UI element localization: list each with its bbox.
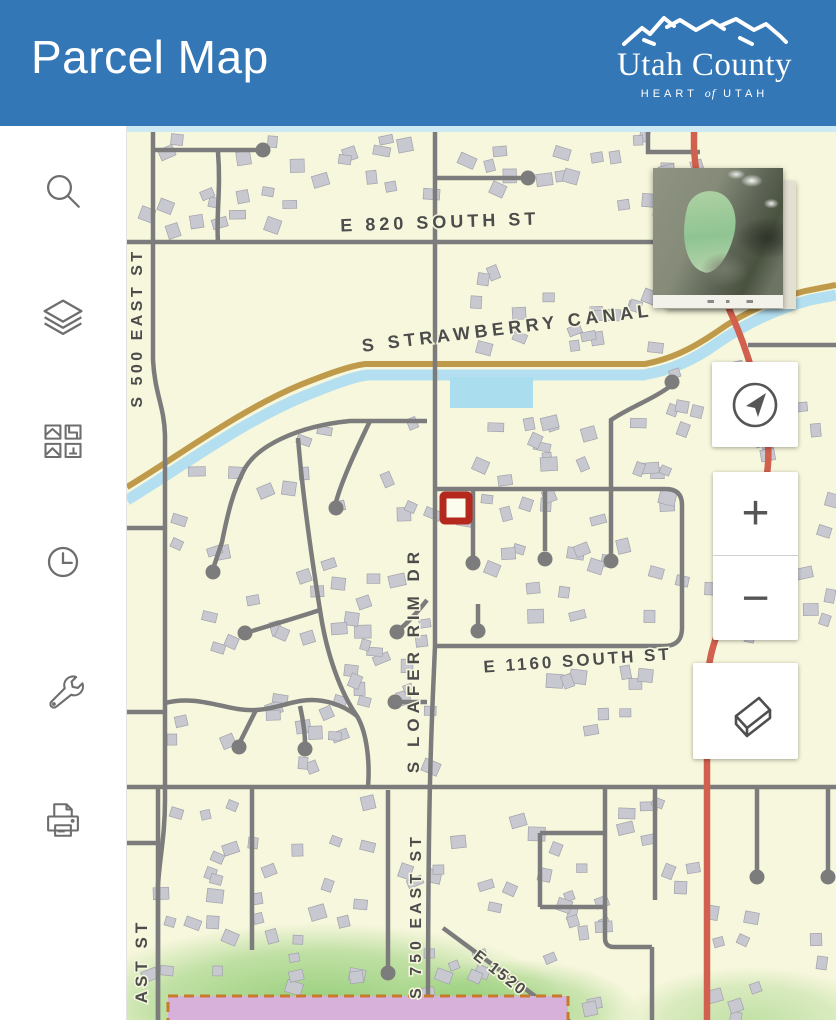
search-tool-button[interactable] (35, 163, 91, 219)
tagline-utah: UTAH (723, 88, 768, 100)
zoom-out-button[interactable]: − (713, 557, 798, 640)
selected-parcel-marker[interactable] (443, 495, 469, 521)
search-icon (35, 163, 91, 219)
edge-water-strip (127, 126, 836, 132)
terrain-overlay (653, 168, 783, 295)
logo-org-name: Utah County (597, 48, 812, 82)
tagline-heart: HEART (641, 88, 698, 100)
logo-tagline: HEART of UTAH (597, 86, 812, 101)
layers-tool-button[interactable] (35, 291, 91, 347)
zoning-parcel (168, 996, 568, 1020)
overview-inset[interactable] (653, 168, 783, 308)
street-label-s500: S 500 EAST ST (129, 248, 146, 407)
street-label-s750: S 750 EAST ST (408, 833, 425, 999)
zoom-control: + − (713, 472, 798, 640)
locate-button[interactable] (712, 362, 798, 447)
app-header: Parcel Map Utah County HEART of UTAH (0, 0, 836, 126)
locate-compass-icon (725, 375, 785, 435)
zoom-in-button[interactable]: + (713, 472, 798, 556)
parcel-map-app: { "header": { "title": "Parcel Map", "bg… (0, 0, 836, 1020)
basemap-gallery-icon (35, 415, 91, 471)
tools-tool-button[interactable] (35, 665, 91, 721)
mountain-range-icon (620, 14, 790, 48)
map-canvas[interactable]: E 820 SOUTH ST S STRAWBERRY CANAL S 500 … (127, 126, 836, 1020)
basemap-toggle-button[interactable] (693, 663, 798, 759)
printer-icon (35, 792, 91, 848)
pond (450, 377, 533, 408)
tagline-of: of (705, 86, 716, 100)
layers-icon (35, 291, 91, 347)
inset-attribution-strip (653, 295, 783, 308)
clock-icon (35, 534, 91, 590)
street-label-east-st-partial: AST ST (132, 919, 151, 1003)
print-tool-button[interactable] (35, 792, 91, 848)
street-label-loafer-rim: S LOAFER RIM DR (404, 547, 423, 773)
satellite-thumbnail (653, 168, 783, 295)
tool-sidebar (0, 126, 127, 1020)
wrench-icon (35, 665, 91, 721)
eraser-icon (711, 676, 781, 746)
basemap-gallery-tool-button[interactable] (35, 415, 91, 471)
utah-county-logo: Utah County HEART of UTAH (597, 14, 812, 101)
page-title: Parcel Map (31, 30, 269, 84)
history-tool-button[interactable] (35, 534, 91, 590)
